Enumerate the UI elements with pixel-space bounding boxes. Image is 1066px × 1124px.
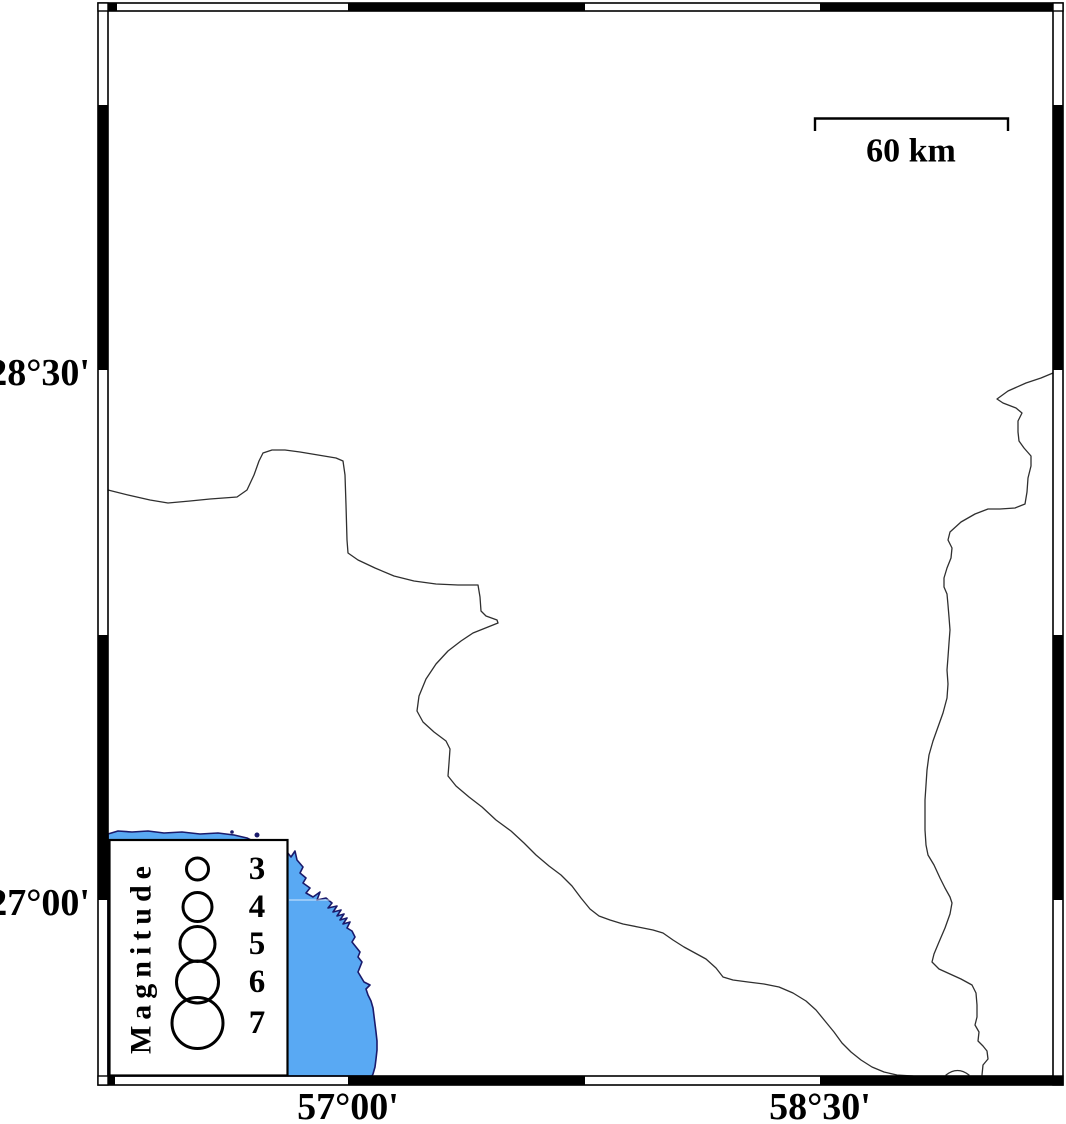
frame-top-segments (108, 3, 1053, 11)
magnitude-legend: Magnitude 34567 (110, 840, 288, 1076)
frame-left-segments (98, 105, 108, 900)
lat-label-2830: 28°30' (0, 352, 90, 394)
province-boundary-east (925, 373, 1053, 1075)
lat-label-2700: 27°00' (0, 882, 90, 924)
legend-title: Magnitude (125, 860, 158, 1054)
map-canvas: Magnitude 34567 60 km (0, 0, 1066, 1124)
legend-values: 34567 (249, 851, 266, 1041)
legend-magnitude-value: 3 (249, 851, 266, 887)
legend-magnitude-value: 7 (249, 1005, 266, 1041)
legend-magnitude-value: 4 (249, 889, 266, 925)
basemap-svg: Magnitude 34567 60 km (0, 0, 1066, 1124)
lon-label-5700: 57°00' (297, 1086, 399, 1124)
scale-bar: 60 km (815, 119, 1008, 170)
frame-bottom-segments (108, 1076, 1053, 1085)
scale-bar-label: 60 km (866, 133, 956, 170)
legend-magnitude-value: 5 (249, 926, 266, 962)
legend-magnitude-value: 6 (249, 964, 266, 1000)
islet-speck (230, 830, 234, 834)
scale-bar-bracket (815, 119, 1008, 132)
islet-speck (255, 833, 260, 838)
frame-right-segments (1053, 105, 1063, 900)
boundary-bump (946, 1071, 969, 1076)
lon-label-5830: 58°30' (769, 1086, 871, 1124)
